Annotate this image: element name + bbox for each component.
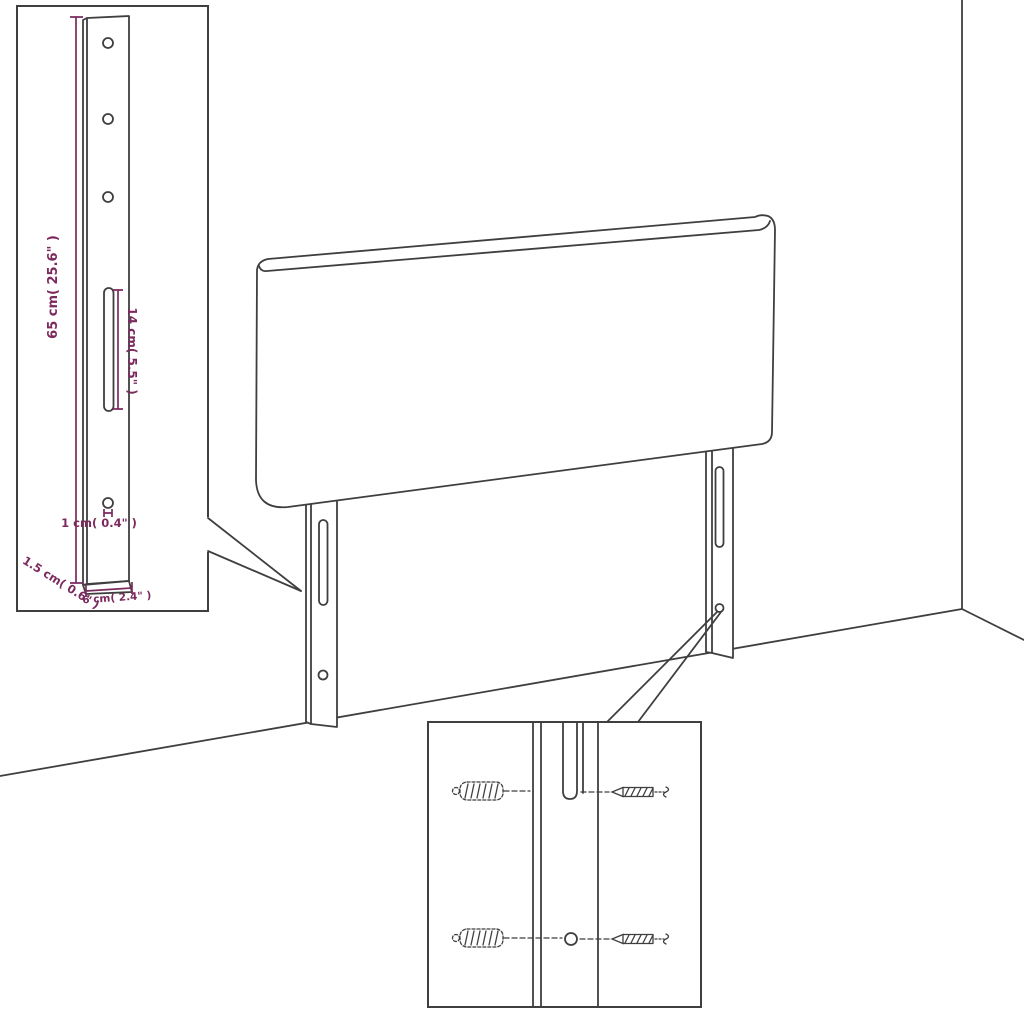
callout-wedge-left	[208, 518, 301, 591]
headboard-dimension-diagram: 65 cm( 25.6" ) 14 cm( 5.5" ) 1 cm( 0.4" …	[0, 0, 1024, 1024]
mounting-inset	[428, 612, 721, 1007]
leg-details	[319, 467, 724, 680]
callout-line-lower	[208, 551, 301, 591]
bracket-inset: 65 cm( 25.6" ) 14 cm( 5.5" ) 1 cm( 0.4" …	[17, 6, 208, 612]
right-leg	[706, 430, 733, 658]
floor-line-right	[962, 609, 1024, 640]
label-slot-length: 14 cm( 5.5" )	[125, 307, 139, 394]
headboard-panel	[256, 215, 775, 507]
mounting-inset-box	[428, 722, 701, 1007]
callout-line-right	[638, 612, 721, 722]
label-hole-diameter: 1 cm( 0.4" )	[61, 516, 137, 530]
callout-line-upper	[208, 518, 301, 591]
panel-outline	[256, 215, 775, 507]
diagram-canvas: 65 cm( 25.6" ) 14 cm( 5.5" ) 1 cm( 0.4" …	[0, 0, 1024, 1024]
bracket-body	[83, 16, 129, 585]
label-bracket-height: 65 cm( 25.6" )	[46, 235, 61, 339]
